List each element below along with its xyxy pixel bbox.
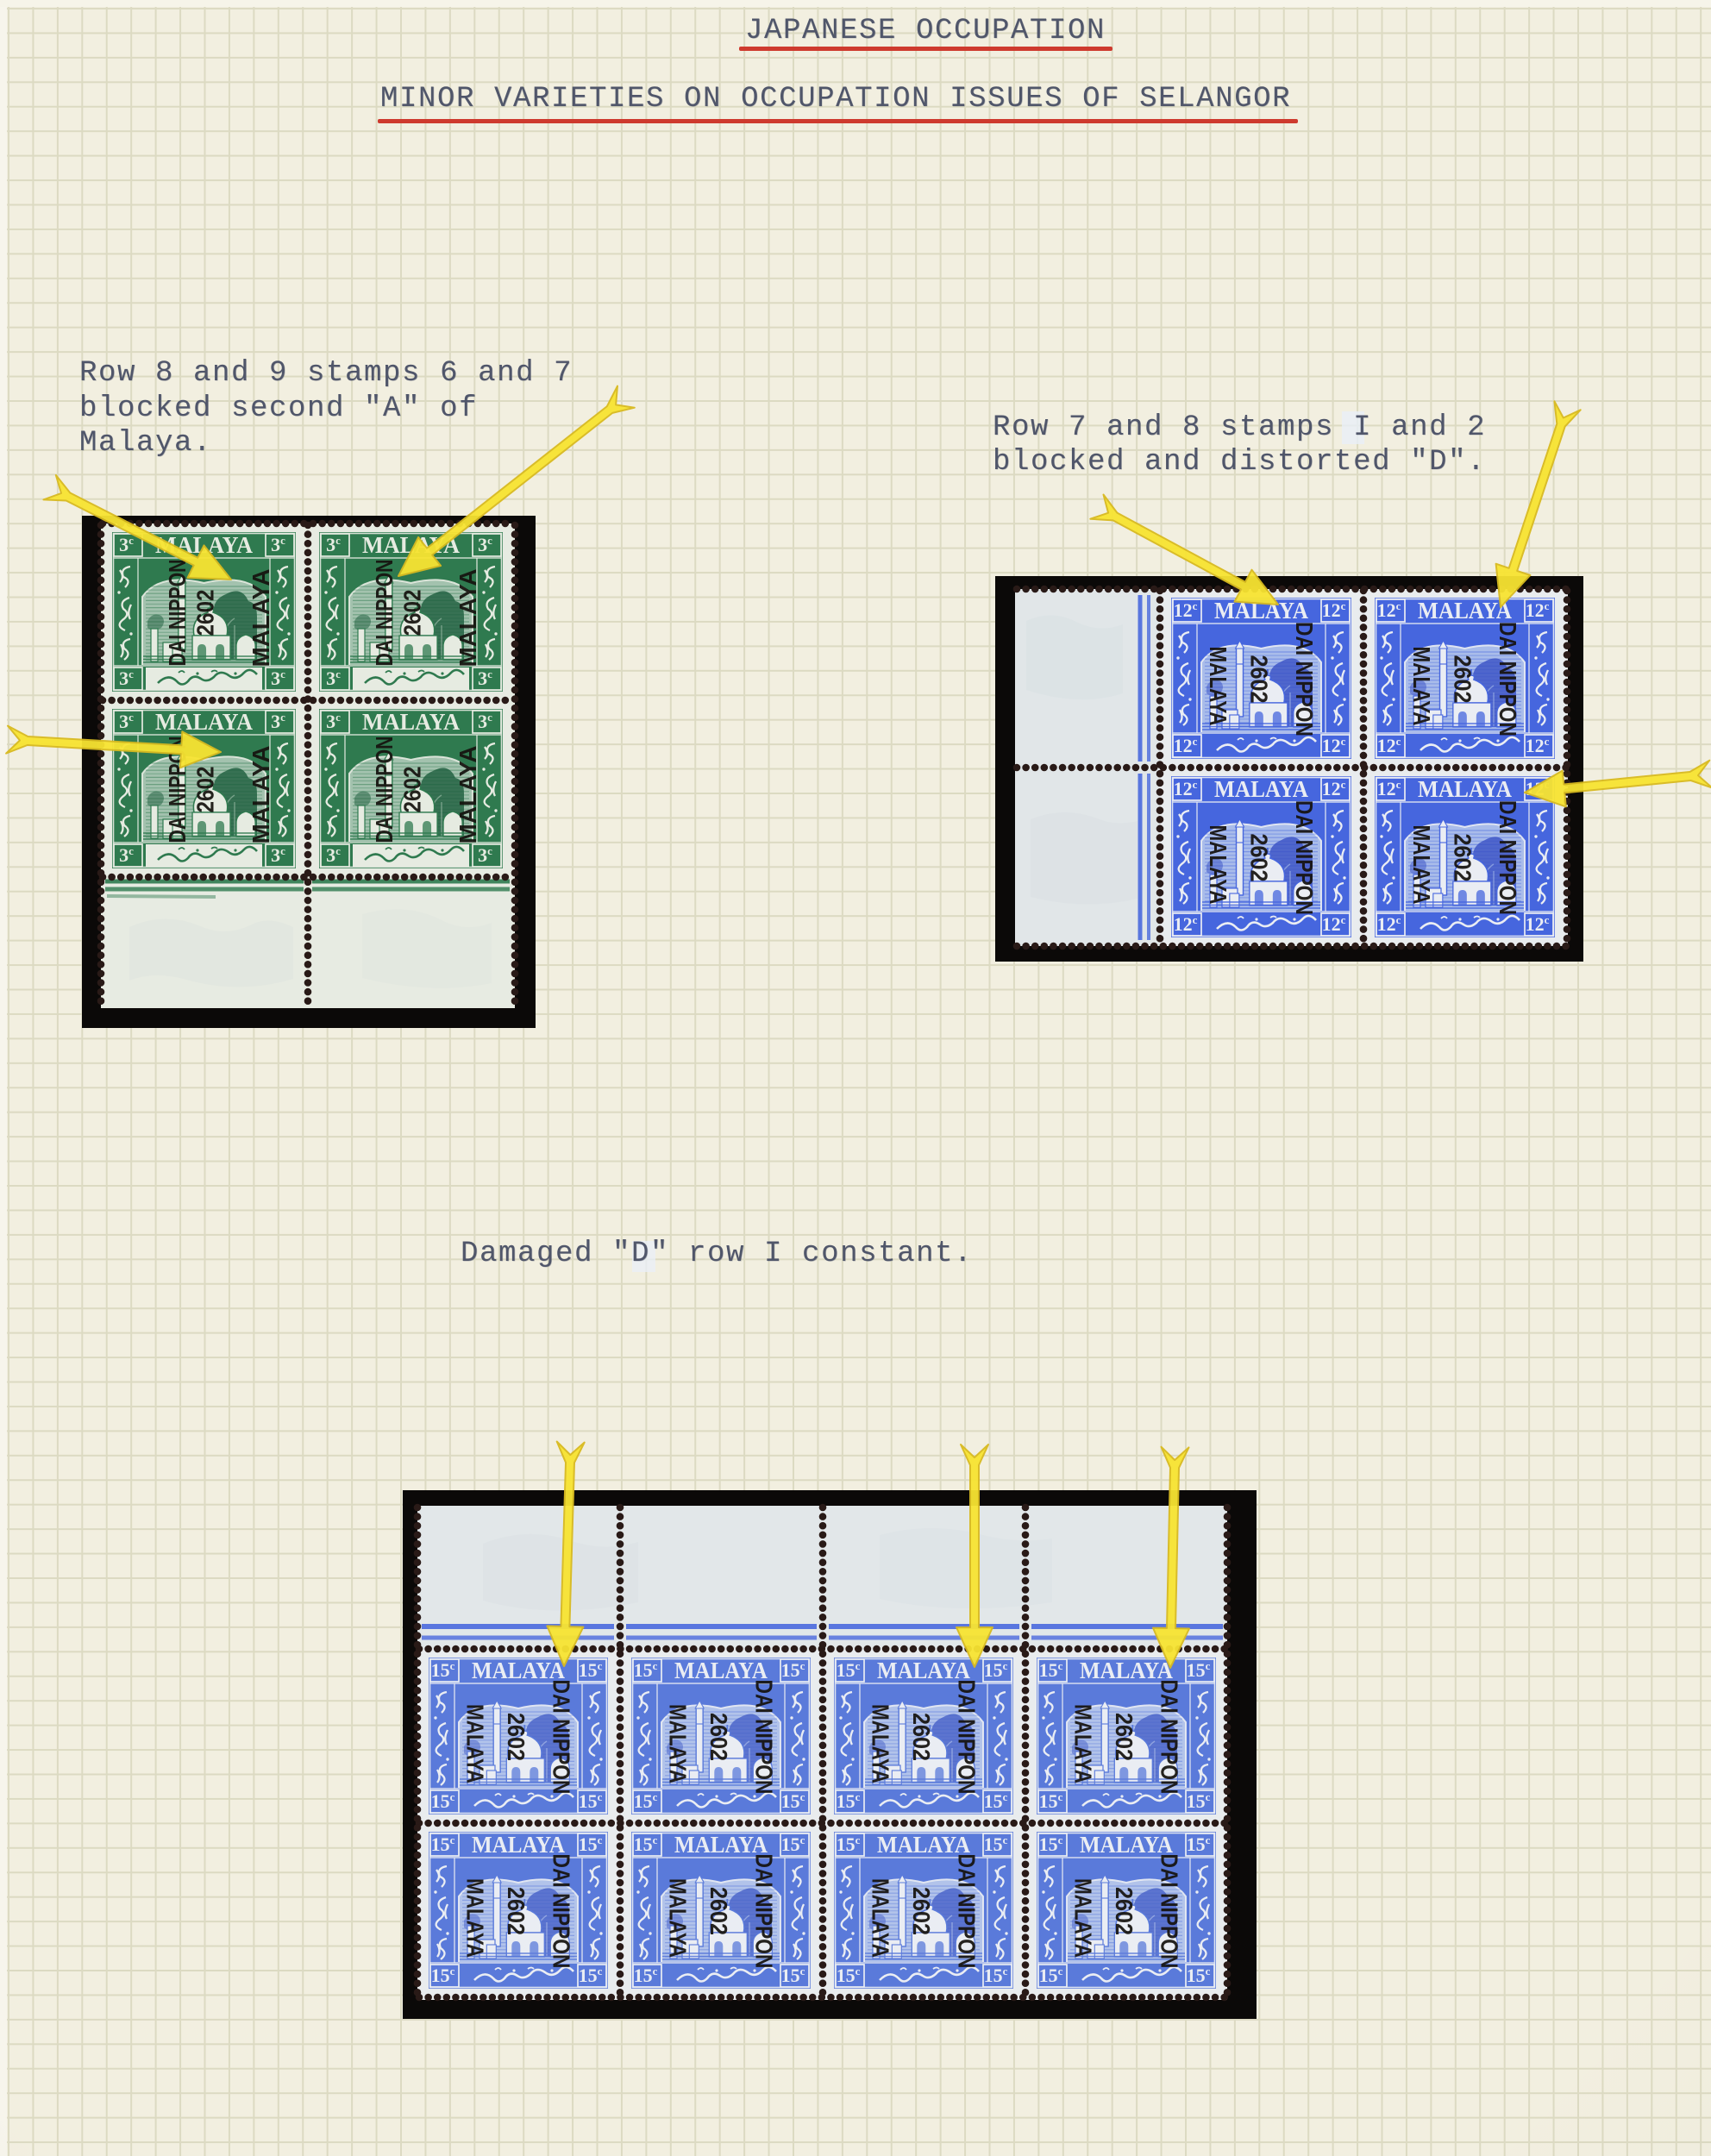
svg-text:MALAYA: MALAYA xyxy=(868,1878,894,1958)
svg-text:2602: 2602 xyxy=(399,590,426,636)
svg-text:DAI NIPPON: DAI NIPPON xyxy=(1156,1854,1183,1969)
svg-text:MALAYA: MALAYA xyxy=(1418,776,1512,802)
svg-text:DAI NIPPON: DAI NIPPON xyxy=(954,1680,981,1795)
svg-text:DAI NIPPON: DAI NIPPON xyxy=(164,560,191,667)
svg-text:MALAYA: MALAYA xyxy=(1418,598,1512,624)
svg-text:MALAYA: MALAYA xyxy=(1408,825,1435,905)
svg-text:MALAYA: MALAYA xyxy=(1205,825,1232,905)
svg-text:2602: 2602 xyxy=(705,1887,732,1935)
svg-text:MALAYA: MALAYA xyxy=(1070,1878,1097,1958)
svg-text:2602: 2602 xyxy=(1450,834,1476,882)
svg-text:MALAYA: MALAYA xyxy=(665,1704,692,1783)
svg-text:2602: 2602 xyxy=(705,1713,732,1761)
svg-text:MALAYA: MALAYA xyxy=(362,709,460,735)
svg-text:DAI NIPPON: DAI NIPPON xyxy=(371,560,398,667)
svg-text:2602: 2602 xyxy=(399,767,426,813)
svg-text:2602: 2602 xyxy=(1450,655,1476,704)
svg-text:MALAYA: MALAYA xyxy=(1070,1704,1097,1783)
svg-text:DAI NIPPON: DAI NIPPON xyxy=(751,1680,778,1795)
svg-text:DAI NIPPON: DAI NIPPON xyxy=(1291,800,1318,915)
svg-text:DAI NIPPON: DAI NIPPON xyxy=(548,1854,575,1969)
svg-text:2602: 2602 xyxy=(1111,1887,1138,1935)
svg-text:MALAYA: MALAYA xyxy=(155,709,253,735)
svg-text:MALAYA: MALAYA xyxy=(1205,647,1232,726)
svg-text:MALAYA: MALAYA xyxy=(462,1704,489,1783)
svg-text:DAI NIPPON: DAI NIPPON xyxy=(548,1680,575,1795)
svg-text:2602: 2602 xyxy=(503,1713,530,1761)
svg-text:2602: 2602 xyxy=(1246,655,1273,704)
svg-text:DAI NIPPON: DAI NIPPON xyxy=(371,736,398,843)
svg-text:MALAYA: MALAYA xyxy=(454,746,481,844)
svg-text:MALAYA: MALAYA xyxy=(248,746,274,844)
svg-text:DAI NIPPON: DAI NIPPON xyxy=(1291,622,1318,736)
svg-text:MALAYA: MALAYA xyxy=(248,569,274,667)
svg-text:DAI NIPPON: DAI NIPPON xyxy=(954,1854,981,1969)
svg-text:2602: 2602 xyxy=(1111,1713,1138,1761)
svg-text:2602: 2602 xyxy=(192,590,219,636)
svg-text:MALAYA: MALAYA xyxy=(1408,647,1435,726)
svg-text:MALAYA: MALAYA xyxy=(868,1704,894,1783)
svg-text:2602: 2602 xyxy=(503,1887,530,1935)
svg-text:2602: 2602 xyxy=(908,1887,935,1935)
svg-text:2602: 2602 xyxy=(1246,834,1273,882)
svg-text:DAI NIPPON: DAI NIPPON xyxy=(1495,622,1521,736)
svg-text:2602: 2602 xyxy=(192,767,219,813)
svg-text:DAI NIPPON: DAI NIPPON xyxy=(1156,1680,1183,1795)
svg-text:2602: 2602 xyxy=(908,1713,935,1761)
svg-text:MALAYA: MALAYA xyxy=(462,1878,489,1958)
svg-text:DAI NIPPON: DAI NIPPON xyxy=(1495,800,1521,915)
svg-text:MALAYA: MALAYA xyxy=(665,1878,692,1958)
svg-text:DAI NIPPON: DAI NIPPON xyxy=(751,1854,778,1969)
svg-text:MALAYA: MALAYA xyxy=(1214,776,1308,802)
svg-text:MALAYA: MALAYA xyxy=(454,569,481,667)
